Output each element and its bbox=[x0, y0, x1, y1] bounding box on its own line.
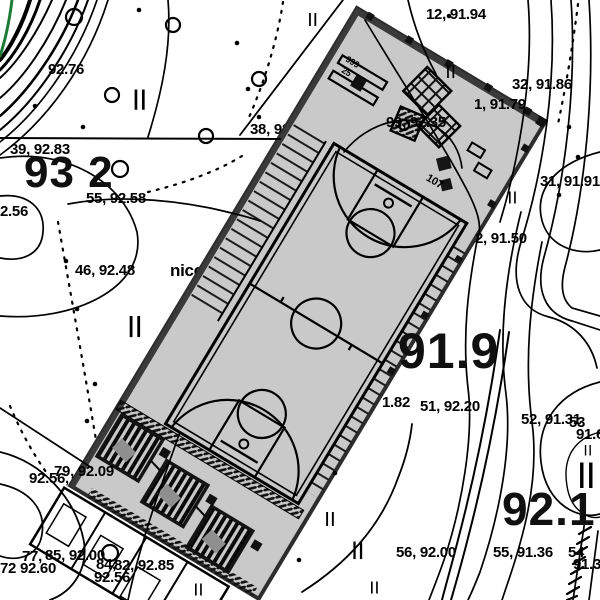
survey-dots bbox=[33, 8, 581, 563]
contour-lines-layer bbox=[0, 0, 600, 600]
site-plan: nicol38, 92 bbox=[0, 0, 600, 600]
